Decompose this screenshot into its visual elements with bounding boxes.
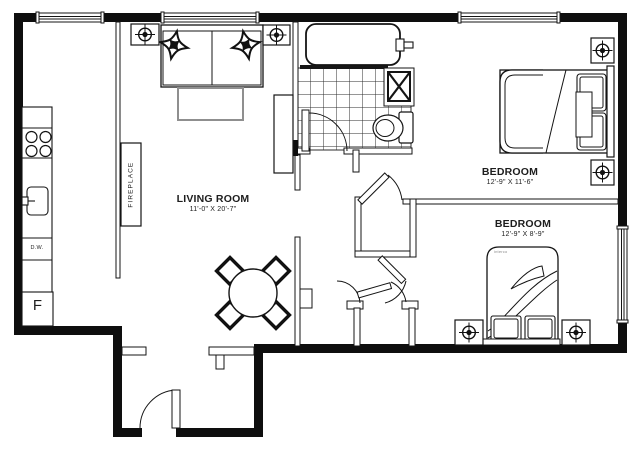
window-bedroom1 xyxy=(458,12,560,23)
floor-plan: LIVING ROOM 11'-0" X 20'-7" BEDROOM 12'-… xyxy=(0,0,640,450)
window-bedroom2 xyxy=(617,226,628,323)
bed-double xyxy=(500,66,614,157)
dishwasher-label: D.W. xyxy=(24,245,50,251)
bedroom1-label: BEDROOM 12'-9" X 11'-6" xyxy=(462,167,558,187)
bedroom1-door xyxy=(358,173,402,204)
window-living xyxy=(161,12,259,23)
bedroom2-name: BEDROOM xyxy=(475,219,571,231)
fridge-label: F xyxy=(24,298,51,315)
bedroom2-door xyxy=(378,256,406,303)
coffee-table xyxy=(178,88,243,120)
fireplace-label: FIREPLACE xyxy=(127,145,134,225)
dining-set xyxy=(217,258,290,329)
living-room-label: LIVING ROOM 11'-0" X 20'-7" xyxy=(148,194,278,214)
bedroom2-label: BEDROOM 12'-9" X 8'-9" xyxy=(475,219,571,239)
shower-unit-icon xyxy=(384,68,414,106)
entry-door xyxy=(140,390,180,428)
living-room-name: LIVING ROOM xyxy=(148,194,278,206)
living-room-dimensions: 11'-0" X 20'-7" xyxy=(148,206,278,214)
window-kitchen xyxy=(36,12,104,23)
dining-table xyxy=(229,269,277,317)
bed-single xyxy=(483,247,560,345)
bedroom1-dimensions: 12'-9" X 11'-6" xyxy=(462,179,558,187)
bed-watermark: interco xyxy=(494,250,524,254)
bathtub-icon xyxy=(306,24,413,65)
closet-doors xyxy=(337,281,406,303)
console-table xyxy=(274,95,293,173)
bedroom2-dimensions: 12'-9" X 8'-9" xyxy=(475,231,571,239)
bedroom1-name: BEDROOM xyxy=(462,167,558,179)
